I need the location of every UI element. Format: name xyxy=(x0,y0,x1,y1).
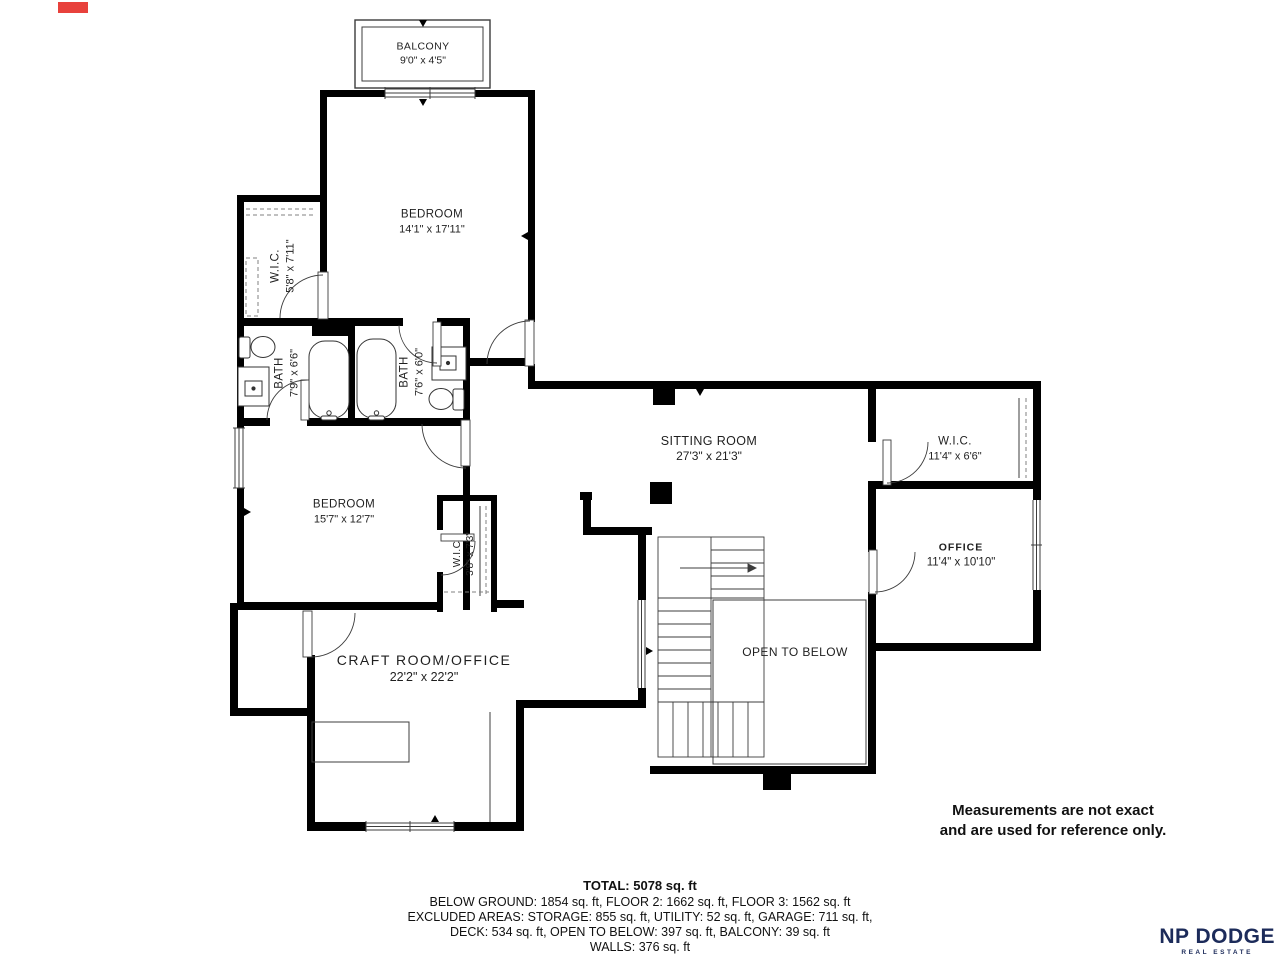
room-label-open-to-below: OPEN TO BELOW xyxy=(742,645,847,661)
toilet-tank xyxy=(239,337,250,358)
summary-total: TOTAL: 5078 sq. ft xyxy=(583,878,697,893)
sink-drain xyxy=(252,387,255,390)
desk xyxy=(312,722,409,762)
door-arc xyxy=(487,321,530,364)
walls xyxy=(230,90,1041,831)
tub-faucet xyxy=(327,411,331,415)
door-leaf xyxy=(318,272,328,319)
room-label-wic-small: W.I.C 3'8" x 7'3" xyxy=(451,532,477,576)
tub-faucet xyxy=(374,411,378,415)
windows xyxy=(233,87,1042,832)
tub-handle xyxy=(369,416,385,420)
room-label-wic-right: W.I.C. 11'4" x 6'6" xyxy=(928,434,981,463)
summary-deck: DECK: 534 sq. ft, OPEN TO BELOW: 397 sq.… xyxy=(450,925,830,939)
door-leaf xyxy=(869,550,877,594)
tub-handle xyxy=(321,416,337,420)
logo-brand-text: NP DODGE xyxy=(1159,926,1275,947)
room-label-bath-left: BATH 7'9" x 6'6" xyxy=(272,349,301,397)
door-arc xyxy=(875,552,915,592)
room-label-balcony: BALCONY 9'0" x 4'5" xyxy=(397,40,450,67)
bathtub xyxy=(357,339,396,418)
room-label-sitting-room: SITTING ROOM 27'3" x 21'3" xyxy=(661,433,757,465)
room-label-wic-upper: W.I.C. 5'8" x 7'11" xyxy=(268,239,297,292)
doors xyxy=(267,272,928,657)
toilet-bowl xyxy=(429,389,453,410)
door-leaf xyxy=(461,420,470,466)
room-label-bath-right: BATH 7'6" x 6'0" xyxy=(397,348,426,396)
disclaimer-text: Measurements are not exact and are used … xyxy=(940,801,1166,842)
floor-plan-page: BALCONY 9'0" x 4'5" BEDROOM 14'1" x 17'1… xyxy=(0,0,1280,960)
logo-sub-text: REAL ESTATE xyxy=(1159,949,1275,956)
door-leaf xyxy=(301,380,309,420)
summary-excluded: EXCLUDED AREAS: STORAGE: 855 sq. ft, UTI… xyxy=(408,910,873,924)
room-label-craft-room: CRAFT ROOM/OFFICE 22'2" x 22'2" xyxy=(337,651,512,685)
door-leaf xyxy=(303,611,312,657)
room-label-bedroom-lower: BEDROOM 15'7" x 12'7" xyxy=(313,497,375,526)
open-to-below-outline xyxy=(713,600,866,764)
door-arc xyxy=(887,442,928,483)
door-leaf xyxy=(883,440,891,485)
stair-arrow xyxy=(748,564,756,572)
door-leaf xyxy=(433,322,441,366)
door-arc xyxy=(422,424,466,468)
np-dodge-logo: NP DODGE REAL ESTATE xyxy=(1159,926,1275,956)
room-label-office: OFFICE 11'4" x 10'10" xyxy=(927,542,996,571)
room-label-bedroom-upper: BEDROOM 14'1" x 17'11" xyxy=(399,207,465,236)
door-leaf xyxy=(525,320,534,366)
bathtub xyxy=(309,341,349,418)
summary-floors: BELOW GROUND: 1854 sq. ft, FLOOR 2: 1662… xyxy=(430,895,851,909)
toilet-tank xyxy=(453,389,464,410)
sink-drain xyxy=(446,361,449,364)
summary-walls: WALLS: 376 sq. ft xyxy=(590,940,690,954)
